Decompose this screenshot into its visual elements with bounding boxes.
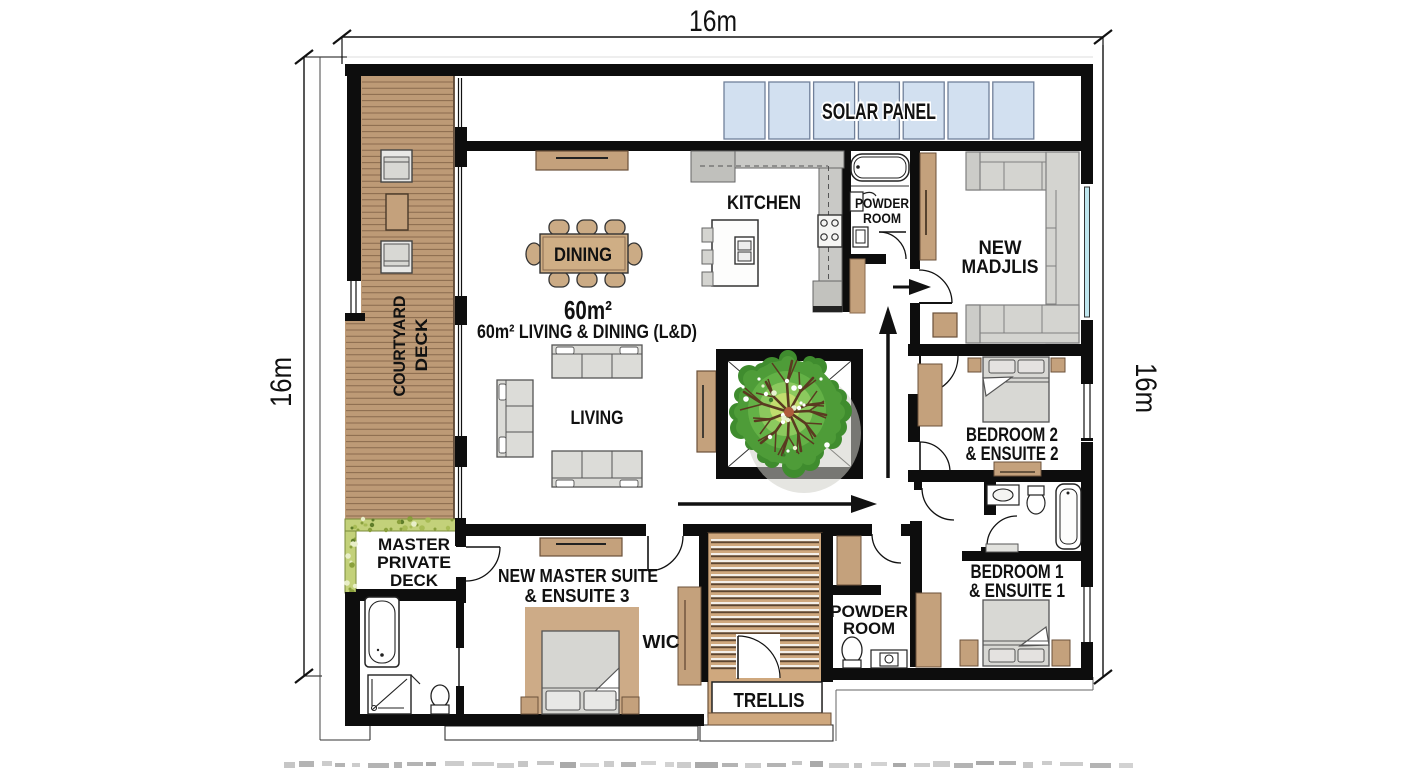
svg-text:COURTYARD: COURTYARD [390, 296, 409, 397]
svg-text:WIC: WIC [643, 632, 680, 652]
svg-text:& ENSUITE 1: & ENSUITE 1 [969, 580, 1065, 602]
svg-text:NEW MASTER SUITE: NEW MASTER SUITE [498, 566, 658, 586]
svg-text:ROOM: ROOM [863, 211, 901, 226]
svg-text:DECK: DECK [390, 572, 438, 590]
svg-text:KITCHEN: KITCHEN [727, 193, 801, 214]
svg-text:16m: 16m [265, 357, 298, 407]
svg-text:& ENSUITE 3: & ENSUITE 3 [525, 586, 630, 606]
svg-text:DINING: DINING [554, 245, 612, 266]
svg-text:16m: 16m [1129, 363, 1162, 413]
svg-text:TRELLIS: TRELLIS [734, 690, 805, 712]
svg-text:POWDER: POWDER [855, 196, 909, 211]
svg-text:SOLAR PANEL: SOLAR PANEL [822, 99, 936, 124]
svg-text:ROOM: ROOM [843, 619, 895, 638]
svg-text:PRIVATE: PRIVATE [377, 554, 451, 572]
svg-text:MADJLIS: MADJLIS [962, 257, 1039, 278]
svg-text:60m²: 60m² [564, 295, 612, 325]
svg-text:16m: 16m [689, 5, 737, 38]
svg-text:NEW: NEW [979, 238, 1022, 259]
svg-text:LIVING: LIVING [571, 407, 624, 429]
svg-text:60m² LIVING & DINING (L&D): 60m² LIVING & DINING (L&D) [477, 322, 697, 343]
svg-text:& ENSUITE 2: & ENSUITE 2 [966, 443, 1059, 465]
svg-text:MASTER: MASTER [378, 536, 450, 554]
svg-text:DECK: DECK [412, 318, 431, 372]
